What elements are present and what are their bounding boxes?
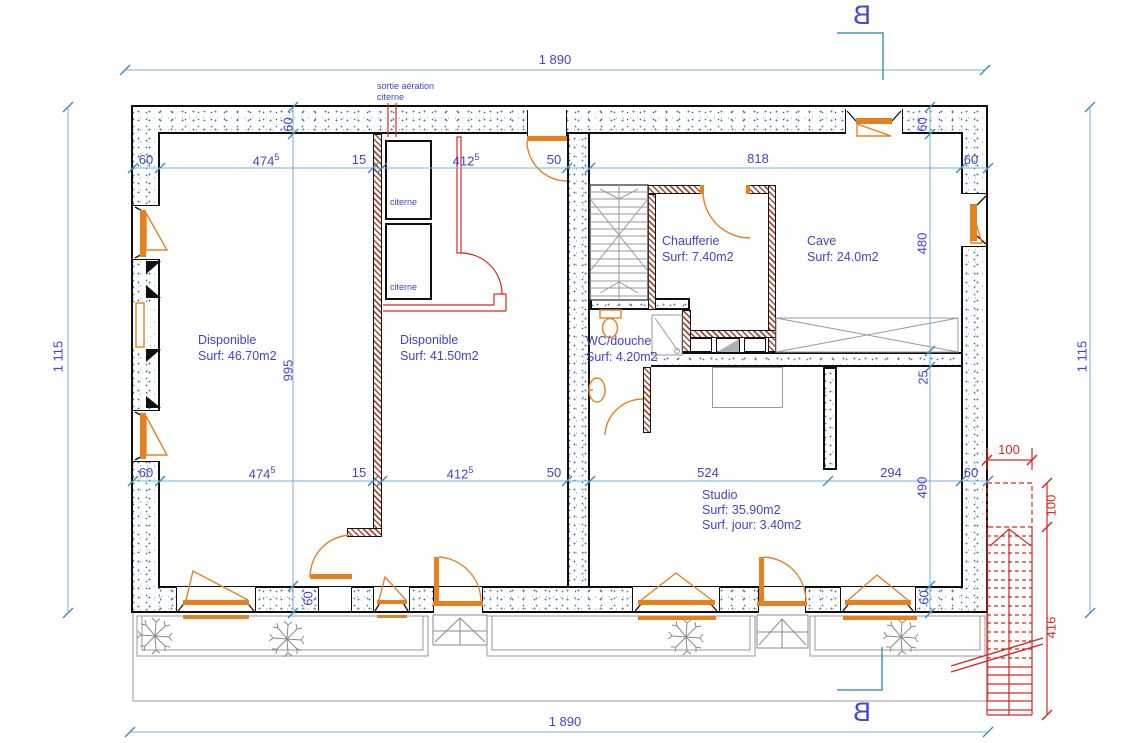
room-label-studio: Studio xyxy=(702,488,737,502)
room-surface-wc: Surf: 4.20m2 xyxy=(586,350,658,364)
room-surface-cave: Surf: 24.0m2 xyxy=(807,250,879,264)
dim-wall-60: 60 xyxy=(301,579,316,619)
dim-overall-top: 1 890 xyxy=(505,52,605,67)
dim-overall-left: 1 115 xyxy=(51,327,66,387)
room-surface-chaufferie: Surf: 7.40m2 xyxy=(662,250,734,264)
wc-wall-lower xyxy=(643,367,651,433)
dim-50: 50 xyxy=(534,465,574,480)
wall-below-stair xyxy=(590,298,690,310)
window-recess-left xyxy=(133,302,150,348)
tree-icon xyxy=(269,621,304,657)
dim-wall-60: 60 xyxy=(951,152,991,167)
dim-25: 25 xyxy=(916,358,931,398)
citerne-label-bottom: citerne xyxy=(390,282,417,292)
dim-overall-right: 1 115 xyxy=(1075,327,1090,387)
window-opening-bottom-1 xyxy=(176,587,256,611)
wall-partition-15-return xyxy=(347,528,382,537)
dim-412-5: 4125 xyxy=(426,152,506,168)
dim-wall-60: 60 xyxy=(951,465,991,480)
dim-stair-100: 100 xyxy=(989,442,1029,457)
door-opening-bottom-3 xyxy=(758,587,806,613)
room-surface-studio: Surf: 35.90m2 xyxy=(702,503,781,517)
chaufferie-wall-left xyxy=(648,194,656,310)
vent-label-line1: sortie aération xyxy=(377,81,434,91)
window-opening-bottom-3 xyxy=(632,587,720,611)
section-marker-b-top: B xyxy=(842,0,882,31)
room-surface-disponible-left: Surf: 46.70m2 xyxy=(198,349,277,363)
dim-wall-60: 60 xyxy=(281,105,296,145)
dim-stair-100: 100 xyxy=(1044,486,1059,526)
dim-15: 15 xyxy=(339,152,379,167)
window-opening-top xyxy=(845,109,903,134)
door-opening-bottom-2 xyxy=(433,587,483,613)
citerne-label-top: citerne xyxy=(390,197,417,207)
room-label-wc: WC/douche xyxy=(586,334,651,348)
dim-490: 490 xyxy=(915,468,930,508)
tree-icon xyxy=(668,619,703,655)
chaufferie-wall-right xyxy=(768,185,776,352)
duct-niche xyxy=(744,338,766,352)
dim-480: 480 xyxy=(915,224,930,264)
window-opening-right xyxy=(961,193,986,247)
dim-overall-bottom: 1 890 xyxy=(515,714,615,729)
duct-niche xyxy=(690,338,712,352)
tree-icon xyxy=(883,619,918,655)
citerne-tank-top xyxy=(385,140,432,220)
studio-counter xyxy=(712,367,783,408)
vent-label-line2: citerne xyxy=(377,92,404,102)
dim-412-5: 4125 xyxy=(420,465,500,481)
dim-50: 50 xyxy=(534,152,574,167)
window-opening-left-lower xyxy=(133,410,160,462)
window-opening-left-upper xyxy=(133,205,160,260)
dim-995: 995 xyxy=(281,351,296,391)
room-label-disponible-mid: Disponible xyxy=(400,333,458,347)
dim-524: 524 xyxy=(668,465,748,480)
wall-stub-studio xyxy=(823,367,837,470)
tree-icon xyxy=(137,618,172,654)
dim-474-5: 4745 xyxy=(222,465,302,481)
section-marker-b-bottom: B xyxy=(842,697,882,728)
room-label-cave: Cave xyxy=(807,234,836,248)
door-opening-bottom-1 xyxy=(318,587,352,611)
porch-steps xyxy=(433,615,808,648)
dim-818: 818 xyxy=(718,151,798,166)
dim-15: 15 xyxy=(339,465,379,480)
room-label-disponible-left: Disponible xyxy=(198,333,256,347)
floor-plan: 1 890 1 890 1 115 1 115 60 4745 15 4125 … xyxy=(0,0,1125,743)
chaufferie-wall-top-left xyxy=(648,185,702,194)
terrace-outlines xyxy=(133,613,988,701)
dim-wall-60: 60 xyxy=(917,578,932,618)
dim-stair-416: 416 xyxy=(1044,608,1059,648)
dim-wall-60: 60 xyxy=(126,465,166,480)
wall-studio-top xyxy=(651,352,961,367)
window-opening-bottom-4 xyxy=(840,587,916,611)
room-label-chaufferie: Chaufferie xyxy=(662,234,719,248)
duct-niche xyxy=(716,338,740,352)
door-opening-entrance-top xyxy=(527,110,567,136)
dim-wall-60: 60 xyxy=(915,105,930,145)
window-opening-bottom-2 xyxy=(373,587,410,611)
dim-wall-60: 60 xyxy=(126,152,166,167)
chaufferie-wall-bottom xyxy=(683,330,776,338)
room-surface-day-studio: Surf. jour: 3.40m2 xyxy=(702,518,801,532)
room-surface-disponible-mid: Surf: 41.50m2 xyxy=(400,349,479,363)
dim-474-5: 4745 xyxy=(226,152,306,168)
